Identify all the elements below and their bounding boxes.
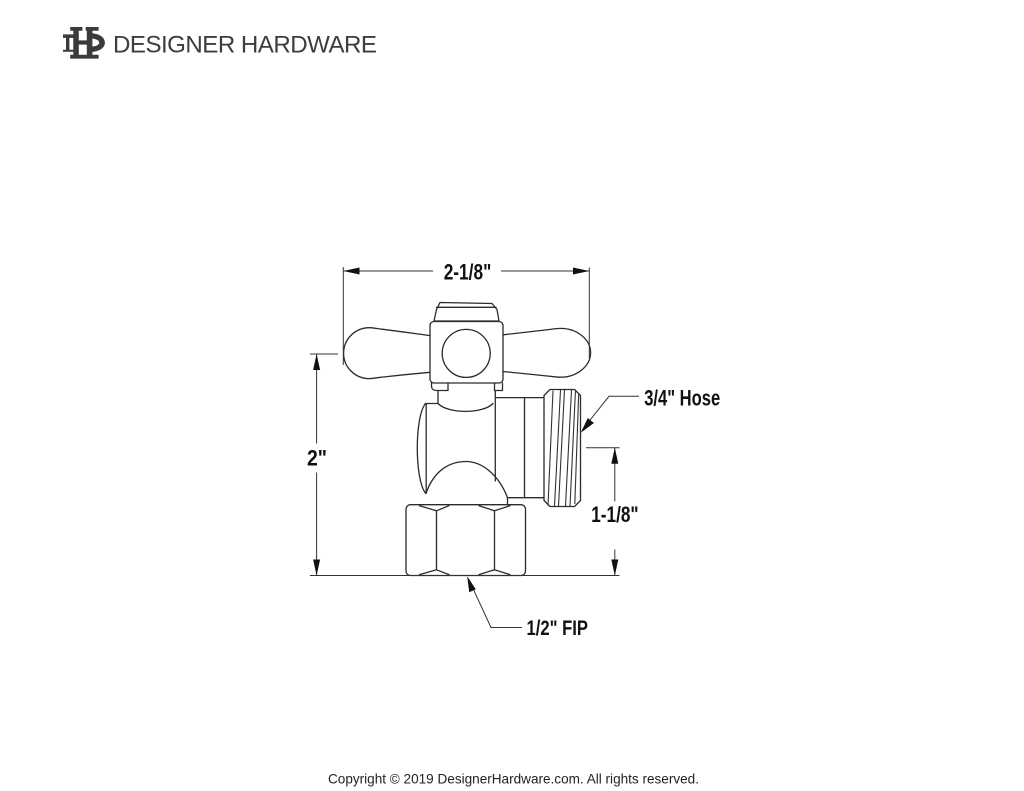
svg-text:1-1/8": 1-1/8" <box>591 502 638 527</box>
svg-text:3/4" Hose: 3/4" Hose <box>644 385 720 410</box>
svg-text:2": 2" <box>307 446 327 471</box>
svg-text:Copyright © 2019 DesignerHardw: Copyright © 2019 DesignerHardware.com. A… <box>328 771 699 787</box>
svg-text:DESIGNER HARDWARE: DESIGNER HARDWARE <box>113 31 377 58</box>
svg-text:2-1/8": 2-1/8" <box>444 259 492 284</box>
svg-text:1/2" FIP: 1/2" FIP <box>527 616 589 640</box>
